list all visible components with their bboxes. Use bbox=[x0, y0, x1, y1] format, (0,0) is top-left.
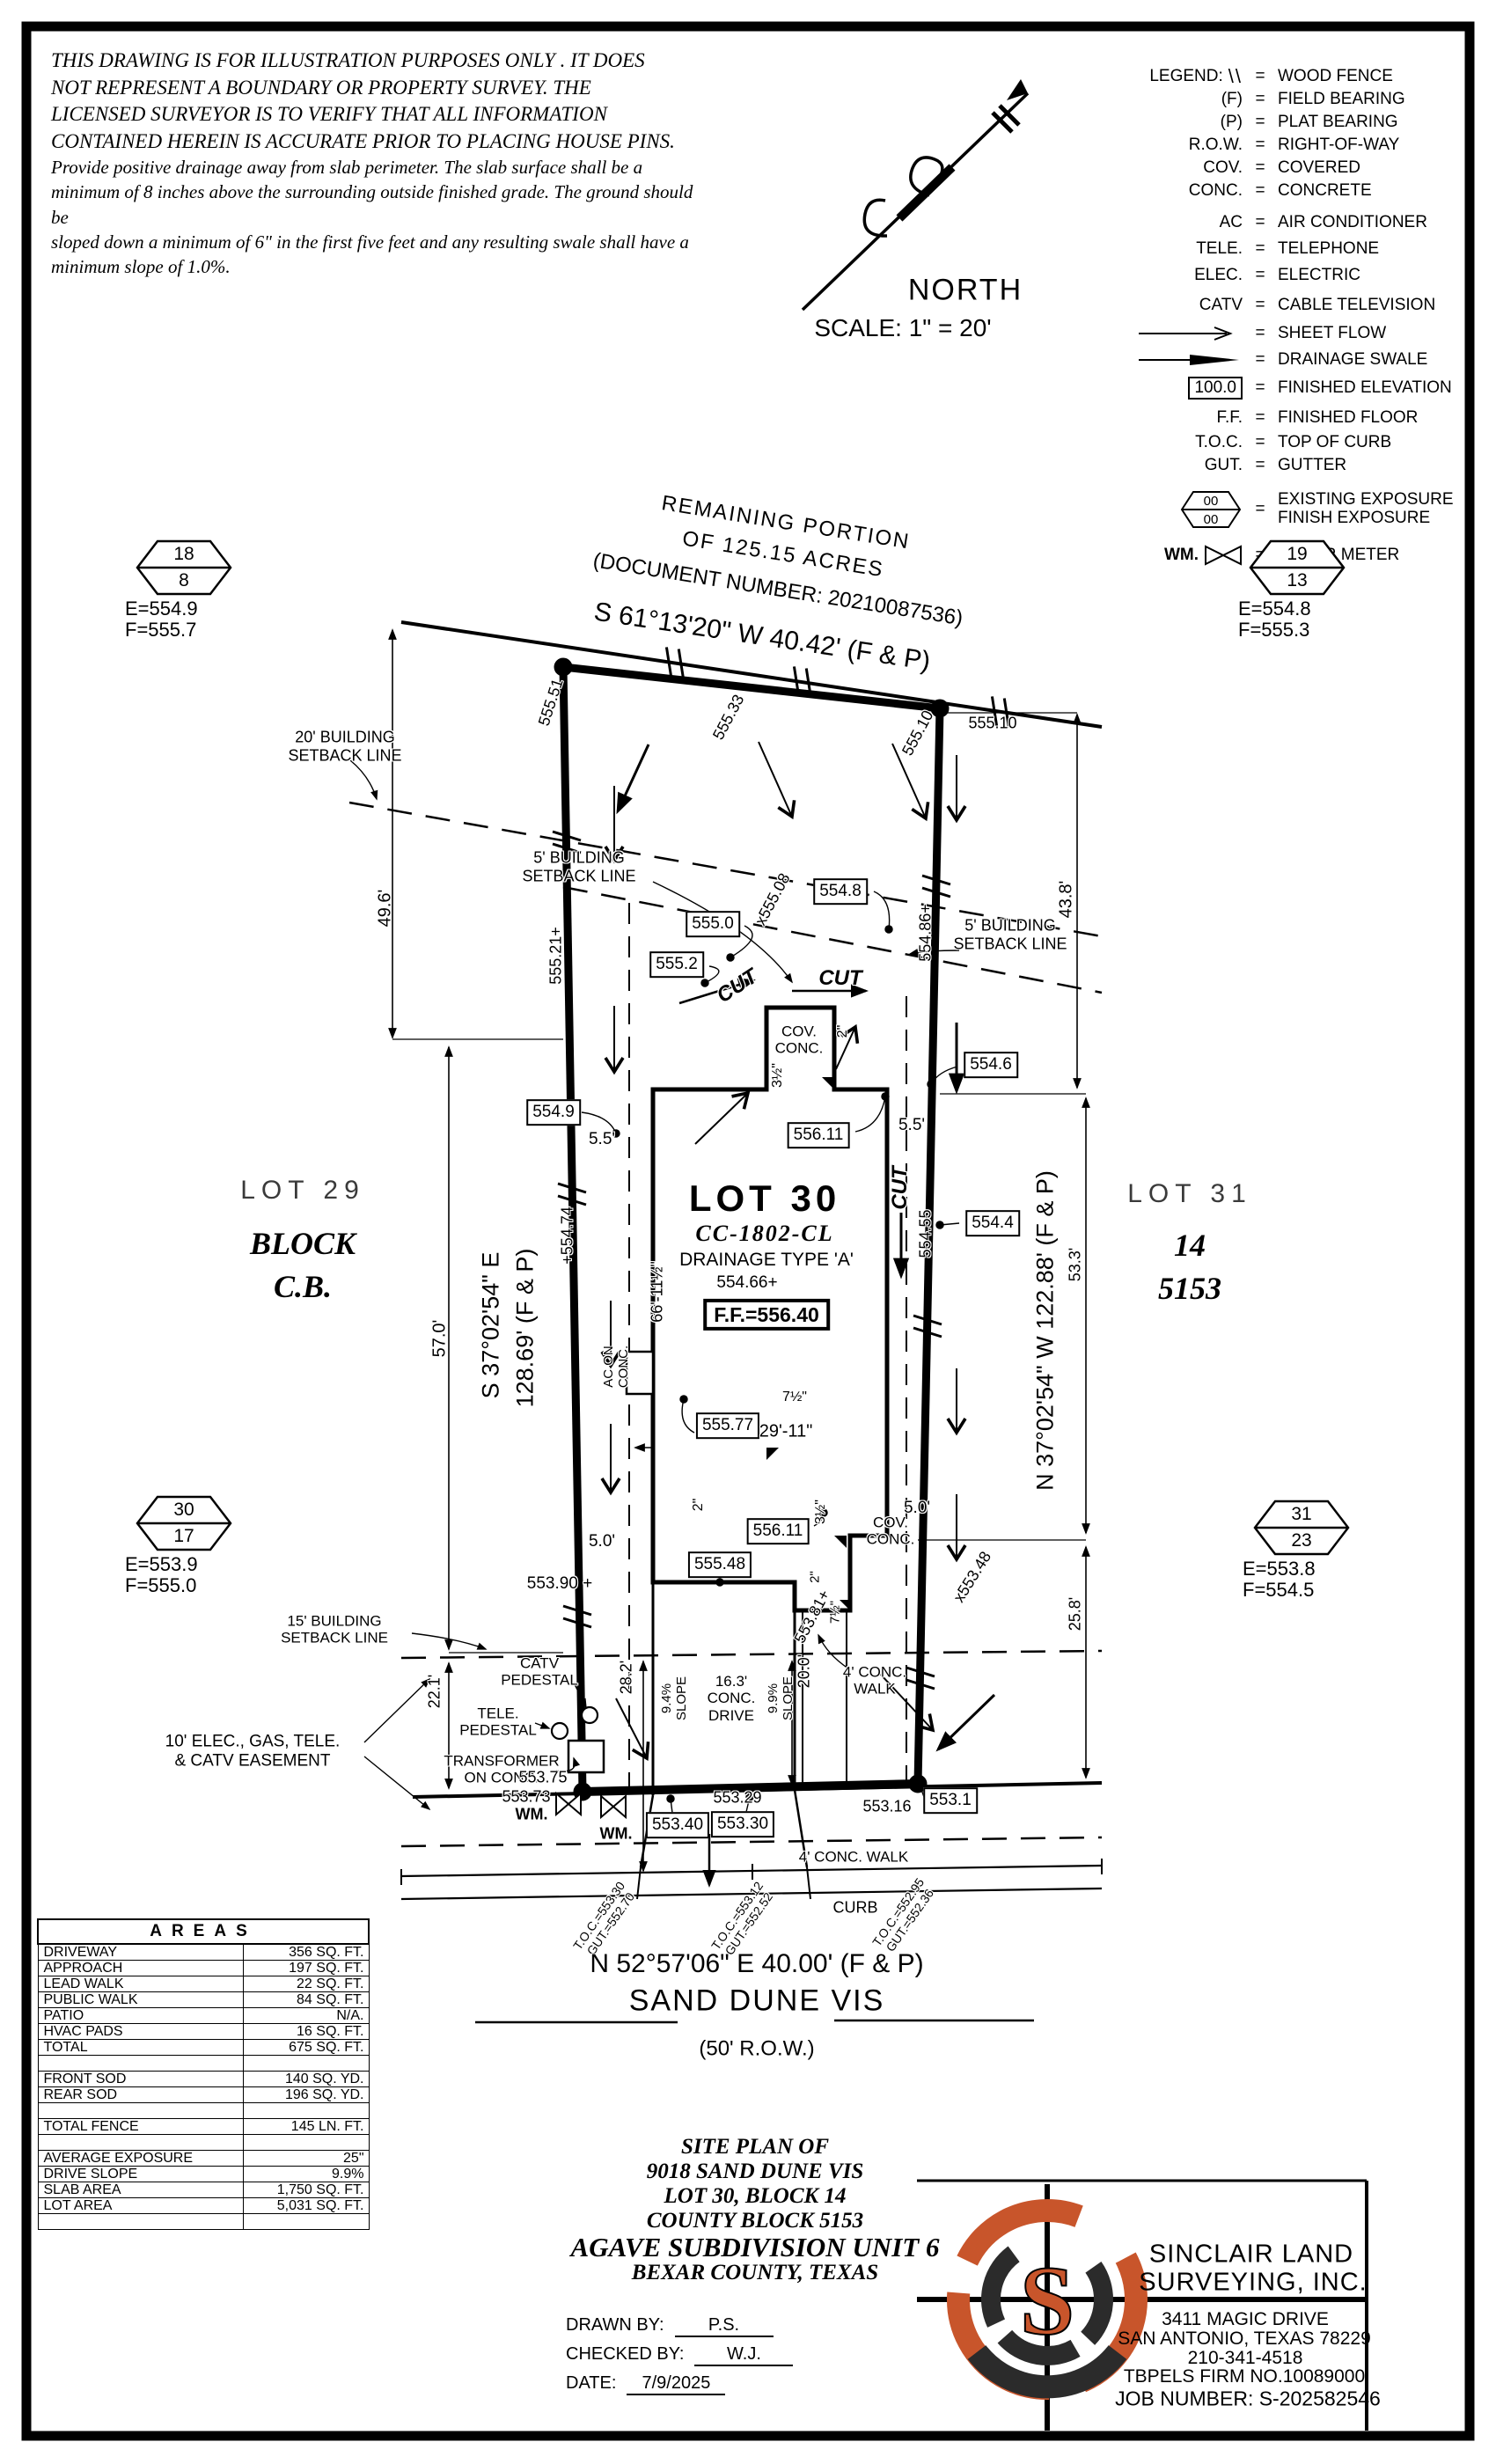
plan-label: 555.77 bbox=[696, 1412, 759, 1439]
disclaimer-line: sloped down a minimum of 6" in the first… bbox=[51, 230, 709, 254]
plan-label: 555.2 bbox=[649, 951, 704, 978]
plan-label: x555.08 bbox=[752, 870, 794, 928]
plan-label: 555.33 bbox=[709, 692, 748, 743]
areas-row: SLAB AREA1,750 SQ. FT. bbox=[38, 2182, 369, 2198]
plan-label: CC-1802-CL bbox=[695, 1221, 833, 1247]
plan-label: 554.55 bbox=[917, 1209, 935, 1258]
firm-address2: SAN ANTONIO, TEXAS 78229 bbox=[1118, 2328, 1371, 2350]
disclaimer-note: THIS DRAWING IS FOR ILLUSTRATION PURPOSE… bbox=[51, 48, 709, 279]
exposure-marker-18-8: 18 8 E=554.9F=555.7 bbox=[118, 539, 250, 601]
legend: LEGEND: \\ = WOOD FENCE (F)=FIELD BEARIN… bbox=[1111, 65, 1466, 567]
plan-label: 16.3' CONC. DRIVE bbox=[708, 1673, 756, 1724]
plan-label: 28.2' bbox=[618, 1661, 636, 1694]
plan-label: 553.75 bbox=[518, 1769, 567, 1787]
plan-label: LOT 31 bbox=[1127, 1179, 1252, 1209]
plan-label: 2" bbox=[807, 1571, 822, 1583]
areas-row: DRIVEWAY356 SQ. FT. bbox=[38, 1944, 369, 1961]
title-line: BEXAR COUNTY, TEXAS bbox=[491, 2261, 1019, 2285]
areas-row: FRONT SOD140 SQ. YD. bbox=[38, 2072, 369, 2087]
firm-name-line1: SINCLAIR LAND bbox=[1149, 2240, 1353, 2270]
plan-label: 556.11 bbox=[788, 1122, 850, 1148]
disclaimer-line: NOT REPRESENT A BOUNDARY OR PROPERTY SUR… bbox=[51, 75, 709, 102]
plan-label: 556.11 bbox=[747, 1518, 810, 1544]
plan-label: 554.6 bbox=[964, 1052, 1018, 1078]
plan-label: 7½" bbox=[827, 1601, 842, 1624]
plan-label: CATV PEDESTAL bbox=[501, 1655, 578, 1690]
areas-row: APPROACH197 SQ. FT. bbox=[38, 1961, 369, 1976]
legend-row: LEGEND: \\ = WOOD FENCE bbox=[1111, 65, 1466, 88]
areas-table: AREAS DRIVEWAY356 SQ. FT.APPROACH197 SQ.… bbox=[37, 1918, 370, 2230]
title-line: SITE PLAN OF bbox=[491, 2135, 1019, 2160]
plan-label: 57.0' bbox=[430, 1320, 451, 1358]
plan-label: 5.5' bbox=[898, 1116, 925, 1135]
legend-row: TELE.=TELEPHONE bbox=[1111, 238, 1466, 260]
disclaimer-line: LICENSED SURVEYOR IS TO VERIFY THAT ALL … bbox=[51, 101, 709, 128]
areas-row: DRIVE SLOPE9.9% bbox=[38, 2167, 369, 2182]
legend-row: COV.=COVERED bbox=[1111, 157, 1466, 180]
plan-label: LOT 29 bbox=[240, 1176, 365, 1206]
plan-label: (50' R.O.W.) bbox=[699, 2036, 814, 2060]
plan-label: 53.3' bbox=[1067, 1248, 1085, 1281]
plan-label: DRAINAGE TYPE 'A' bbox=[679, 1250, 854, 1271]
plan-label: 22.1' bbox=[426, 1675, 444, 1708]
plan-label: F.F.=556.40 bbox=[703, 1299, 830, 1331]
plan-label: 554.9 bbox=[526, 1099, 581, 1126]
drawn-by-label: DRAWN BY: bbox=[566, 2315, 664, 2335]
legend-title: LEGEND: bbox=[1149, 67, 1222, 86]
plan-label: N 37°02'54" W 122.88' (F & P) bbox=[1032, 1170, 1060, 1491]
plan-label: 555.10 bbox=[898, 708, 937, 759]
plan-label: 5' BUILDING SETBACK LINE bbox=[953, 916, 1067, 952]
plan-label: 9.4% SLOPE bbox=[659, 1676, 689, 1720]
plan-label: 7½" bbox=[782, 1390, 807, 1405]
plan-label: 20.0' bbox=[796, 1654, 814, 1688]
plan-label: BLOCK bbox=[250, 1225, 356, 1262]
areas-row bbox=[38, 2103, 369, 2119]
legend-row: 00 00 =EXISTING EXPOSURE FINISH EXPOSURE bbox=[1111, 486, 1466, 533]
plan-label: 554.4 bbox=[965, 1210, 1020, 1236]
plan-label: SCALE: 1" = 20' bbox=[814, 314, 991, 342]
plan-label: CUT bbox=[713, 964, 763, 1008]
plan-label: 555.21+ bbox=[547, 927, 566, 985]
plan-label: 49.6' bbox=[376, 890, 396, 928]
exposure-hexagon-icon: 00 00 bbox=[1179, 488, 1243, 531]
sheet-flow-icon bbox=[1137, 326, 1243, 341]
plan-label: CUT bbox=[818, 966, 862, 991]
plan-label: 4' CONC. WALK bbox=[799, 1848, 908, 1865]
plan-label: 66'-11½" bbox=[649, 1261, 667, 1323]
plan-label: 554.8 bbox=[813, 878, 868, 905]
plan-label: WM. bbox=[516, 1806, 548, 1824]
site-plan-page: S REMAINING PORTIONOF 125.15 ACRES(DOCUM… bbox=[0, 0, 1496, 2464]
plan-label: 5.0' bbox=[589, 1532, 615, 1551]
plan-label: 128.69' (F & P) bbox=[512, 1249, 539, 1408]
firm-job-number: JOB NUMBER: S-202582546 bbox=[1115, 2387, 1381, 2411]
plan-label: COV. CONC. bbox=[867, 1514, 915, 1549]
disclaimer-line: minimum of 8 inches above the surroundin… bbox=[51, 180, 709, 229]
plan-label: 553.90 + bbox=[527, 1574, 593, 1594]
firm-name-line2: SURVEYING, INC. bbox=[1139, 2269, 1367, 2298]
checked-by-value: W.J. bbox=[694, 2344, 793, 2366]
plan-label: 10' ELEC., GAS, TELE. & CATV EASEMENT bbox=[165, 1732, 341, 1770]
legend-row: (F)=FIELD BEARING bbox=[1111, 88, 1466, 111]
plan-label: 20' BUILDING SETBACK LINE bbox=[288, 728, 401, 764]
areas-row: AVERAGE EXPOSURE25" bbox=[38, 2151, 369, 2167]
plan-label: 5153 bbox=[1158, 1270, 1221, 1307]
disclaimer-line: minimum slope of 1.0%. bbox=[51, 254, 709, 279]
firm-address1: 3411 MAGIC DRIVE bbox=[1162, 2309, 1329, 2330]
plan-label: T.O.C.=552.95 GUT.=552.36 bbox=[870, 1876, 939, 1958]
disclaimer-line: Provide positive drainage away from slab… bbox=[51, 155, 709, 180]
legend-row: 100.0 =FINISHED ELEVATION bbox=[1111, 377, 1466, 400]
areas-row: LOT AREA5,031 SQ. FT. bbox=[38, 2198, 369, 2214]
legend-row: CATV=CABLE TELEVISION bbox=[1111, 294, 1466, 317]
plan-label: x553.48 bbox=[950, 1548, 994, 1605]
disclaimer-line: THIS DRAWING IS FOR ILLUSTRATION PURPOSE… bbox=[51, 48, 709, 75]
checked-by-label: CHECKED BY: bbox=[566, 2344, 684, 2364]
areas-row: PATION/A. bbox=[38, 2008, 369, 2024]
plan-label: 5.5' bbox=[589, 1130, 615, 1149]
plan-label: NORTH bbox=[908, 274, 1023, 308]
areas-row: TOTAL675 SQ. FT. bbox=[38, 2040, 369, 2056]
plan-label: 553.16 bbox=[862, 1798, 911, 1816]
legend-row: =DRAINAGE SWALE bbox=[1111, 348, 1466, 371]
legend-row: =SHEET FLOW bbox=[1111, 322, 1466, 345]
svg-text:00: 00 bbox=[1204, 512, 1219, 527]
date-value: 7/9/2025 bbox=[627, 2373, 725, 2395]
legend-desc: WOOD FENCE bbox=[1278, 68, 1466, 86]
plan-label: 3½" bbox=[813, 1500, 829, 1524]
plan-label: 553.40 bbox=[646, 1812, 709, 1838]
legend-row: (P)=PLAT BEARING bbox=[1111, 111, 1466, 134]
plan-label: 554.66+ bbox=[716, 1273, 777, 1293]
date-label: DATE: bbox=[566, 2373, 616, 2393]
plan-label: 555.10 bbox=[968, 715, 1016, 733]
plan-label: 25.8' bbox=[1067, 1597, 1085, 1631]
plan-label: N 52°57'06" E 40.00' (F & P) bbox=[590, 1949, 923, 1979]
legend-row: T.O.C.=TOP OF CURB bbox=[1111, 431, 1466, 454]
plan-label: +554.74 bbox=[559, 1206, 577, 1265]
plan-label: 9.9% SLOPE bbox=[766, 1676, 796, 1720]
plan-label: WM. bbox=[600, 1825, 633, 1844]
plan-label: C.B. bbox=[274, 1268, 332, 1305]
plan-label: 2" bbox=[691, 1499, 707, 1512]
exposure-marker-19-13: 19 13 E=554.8F=555.3 bbox=[1231, 539, 1363, 601]
plan-label: LOT 30 bbox=[689, 1177, 840, 1220]
plan-label: S 37°02'54" E bbox=[478, 1252, 505, 1399]
areas-row: LEAD WALK22 SQ. FT. bbox=[38, 1976, 369, 1992]
areas-row bbox=[38, 2214, 369, 2230]
legend-row: R.O.W.=RIGHT-OF-WAY bbox=[1111, 134, 1466, 157]
legend-row: GUT.=GUTTER bbox=[1111, 454, 1466, 477]
plan-label: SAND DUNE VIS bbox=[629, 1984, 885, 2019]
exposure-marker-31-23: 31 23 E=553.8F=554.5 bbox=[1236, 1499, 1368, 1561]
plan-label: 14 bbox=[1174, 1227, 1206, 1264]
plan-label: AC ON CONC. bbox=[601, 1346, 631, 1388]
plan-label: 555.51 bbox=[535, 677, 568, 729]
legend-row: CONC.=CONCRETE bbox=[1111, 180, 1466, 202]
plan-label: 5' BUILDING SETBACK LINE bbox=[522, 848, 635, 884]
exposure-marker-30-17: 30 17 E=553.9F=555.0 bbox=[118, 1494, 250, 1557]
title-line: LOT 30, BLOCK 14 bbox=[491, 2184, 1019, 2209]
plan-label: CUT bbox=[888, 1166, 913, 1209]
svg-text:00: 00 bbox=[1204, 494, 1219, 509]
drainage-swale-icon bbox=[1137, 352, 1243, 368]
areas-row bbox=[38, 2135, 369, 2151]
plan-label: 29'-11" bbox=[759, 1422, 813, 1442]
plan-label: 4' CONC. WALK bbox=[843, 1664, 906, 1698]
areas-row: REAR SOD196 SQ. YD. bbox=[38, 2087, 369, 2103]
plan-label: 553.73 bbox=[502, 1788, 550, 1807]
drawn-by-value: P.S. bbox=[675, 2315, 774, 2337]
plan-label: 553.29 bbox=[713, 1789, 761, 1808]
firm-tbpels: TBPELS FIRM NO.10089000 bbox=[1124, 2366, 1365, 2387]
plan-label: 555.0 bbox=[686, 911, 740, 937]
areas-row: TOTAL FENCE145 LN. FT. bbox=[38, 2119, 369, 2135]
legend-row: F.F.=FINISHED FLOOR bbox=[1111, 407, 1466, 429]
wood-fence-icon: \\ bbox=[1228, 65, 1243, 88]
plan-label: 553.1 bbox=[923, 1787, 978, 1814]
legend-row: ELEC.=ELECTRIC bbox=[1111, 264, 1466, 287]
plan-label: 43.8' bbox=[1057, 881, 1077, 919]
plan-label: CURB bbox=[832, 1899, 877, 1918]
plan-label: 554.86+ bbox=[917, 904, 935, 962]
finished-elevation-icon: 100.0 bbox=[1188, 377, 1243, 400]
areas-row: PUBLIC WALK84 SQ. FT. bbox=[38, 1992, 369, 2008]
plan-label: 553.30 bbox=[711, 1811, 774, 1837]
plan-label: 15' BUILDING SETBACK LINE bbox=[281, 1613, 388, 1647]
areas-row bbox=[38, 2056, 369, 2072]
title-line: 9018 SAND DUNE VIS bbox=[491, 2160, 1019, 2184]
plan-label: TELE. PEDESTAL bbox=[459, 1705, 537, 1740]
title-line: AGAVE SUBDIVISION UNIT 6 bbox=[491, 2233, 1019, 2261]
legend-row: AC=AIR CONDITIONER bbox=[1111, 211, 1466, 234]
areas-row: HVAC PADS16 SQ. FT. bbox=[38, 2024, 369, 2040]
signature-rows: DRAWN BY:P.S. CHECKED BY:W.J. DATE:7/9/2… bbox=[566, 2315, 1019, 2395]
title-line: COUNTY BLOCK 5153 bbox=[491, 2209, 1019, 2233]
areas-table-title: AREAS bbox=[38, 1919, 369, 1944]
disclaimer-line: CONTAINED HEREIN IS ACCURATE PRIOR TO PL… bbox=[51, 128, 709, 156]
plan-label: 2" bbox=[835, 1025, 851, 1038]
plan-label: 555.48 bbox=[688, 1551, 752, 1578]
title-block: SITE PLAN OF 9018 SAND DUNE VIS LOT 30, … bbox=[491, 2135, 1019, 2402]
areas-table-body: DRIVEWAY356 SQ. FT.APPROACH197 SQ. FT.LE… bbox=[38, 1944, 369, 2230]
plan-label: COV. CONC. bbox=[775, 1023, 824, 1058]
plan-label: 3½" bbox=[770, 1063, 786, 1088]
plan-label: 5.0' bbox=[904, 1499, 930, 1518]
